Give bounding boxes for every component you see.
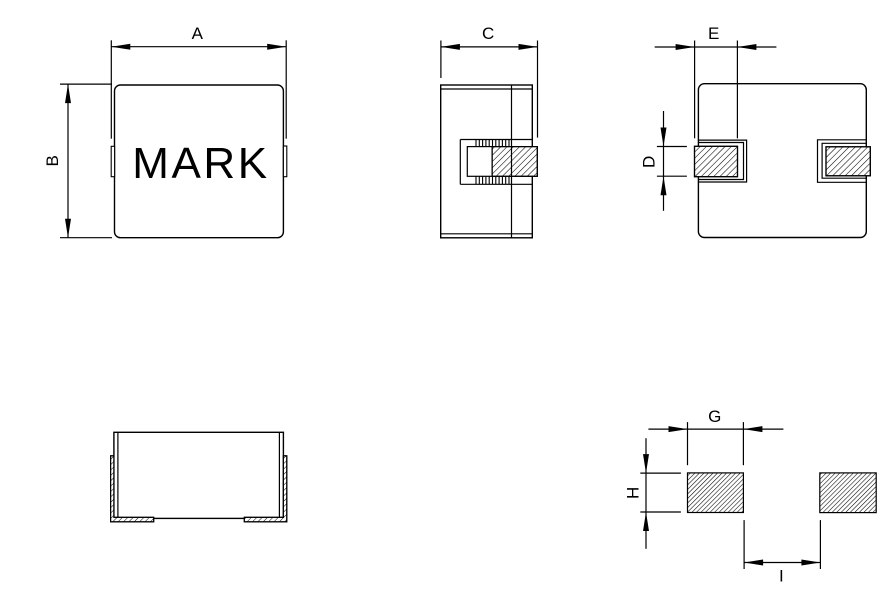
svg-text:H: H bbox=[624, 487, 643, 499]
svg-text:MARK: MARK bbox=[132, 139, 270, 188]
svg-text:C: C bbox=[482, 24, 494, 43]
svg-text:B: B bbox=[43, 155, 62, 166]
svg-text:G: G bbox=[708, 407, 721, 426]
svg-text:I: I bbox=[779, 567, 784, 586]
svg-text:E: E bbox=[708, 24, 719, 43]
svg-text:D: D bbox=[640, 156, 659, 168]
svg-text:A: A bbox=[192, 24, 204, 43]
